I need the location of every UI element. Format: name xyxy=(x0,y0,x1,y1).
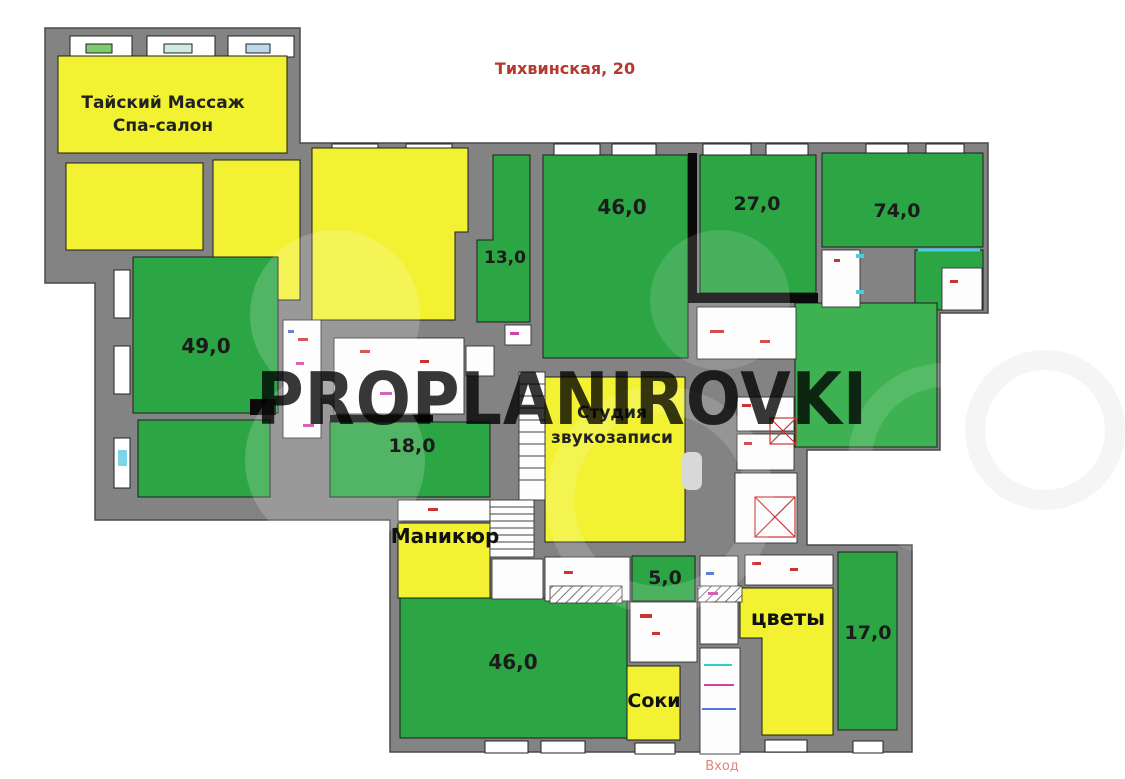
spa-label-line2: Спа-салон xyxy=(113,116,213,136)
utility-corridor-1 xyxy=(492,559,543,599)
site-watermark-text: PROPLANIROVKI xyxy=(256,357,868,441)
window-bays-top-left xyxy=(70,36,294,57)
studio-door-bump xyxy=(682,452,702,490)
room-46-bottom-label: 46,0 xyxy=(488,650,537,674)
address-title: Тихвинская, 20 xyxy=(495,59,635,78)
utility-74-corridor xyxy=(822,250,860,307)
entrance-label: Вход xyxy=(705,759,739,774)
room-46-top-label: 46,0 xyxy=(597,195,646,219)
entrance-corridor xyxy=(700,648,740,754)
room-13-label: 13,0 xyxy=(484,248,526,268)
room-49-label: 49,0 xyxy=(181,334,230,358)
room-spa-lower-left xyxy=(66,163,203,250)
floor-plan-canvas: Тихвинская, 20 xyxy=(0,0,1125,779)
room-27-label: 27,0 xyxy=(734,193,781,215)
windows-left-wall xyxy=(114,270,130,488)
room-5-label: 5,0 xyxy=(648,567,682,589)
manicure-label: Маникюр xyxy=(391,524,500,548)
flowers-label: цветы xyxy=(751,606,825,630)
utility-above-flowers xyxy=(745,555,833,585)
room-17-label: 17,0 xyxy=(845,622,892,644)
room-74-label: 74,0 xyxy=(874,200,921,222)
utility-74-small xyxy=(942,268,982,310)
spa-label-line1: Тайский Массаж xyxy=(81,93,244,113)
juice-label: Соки xyxy=(627,690,680,712)
floor-plan-svg: Тихвинская, 20 xyxy=(0,0,1125,779)
